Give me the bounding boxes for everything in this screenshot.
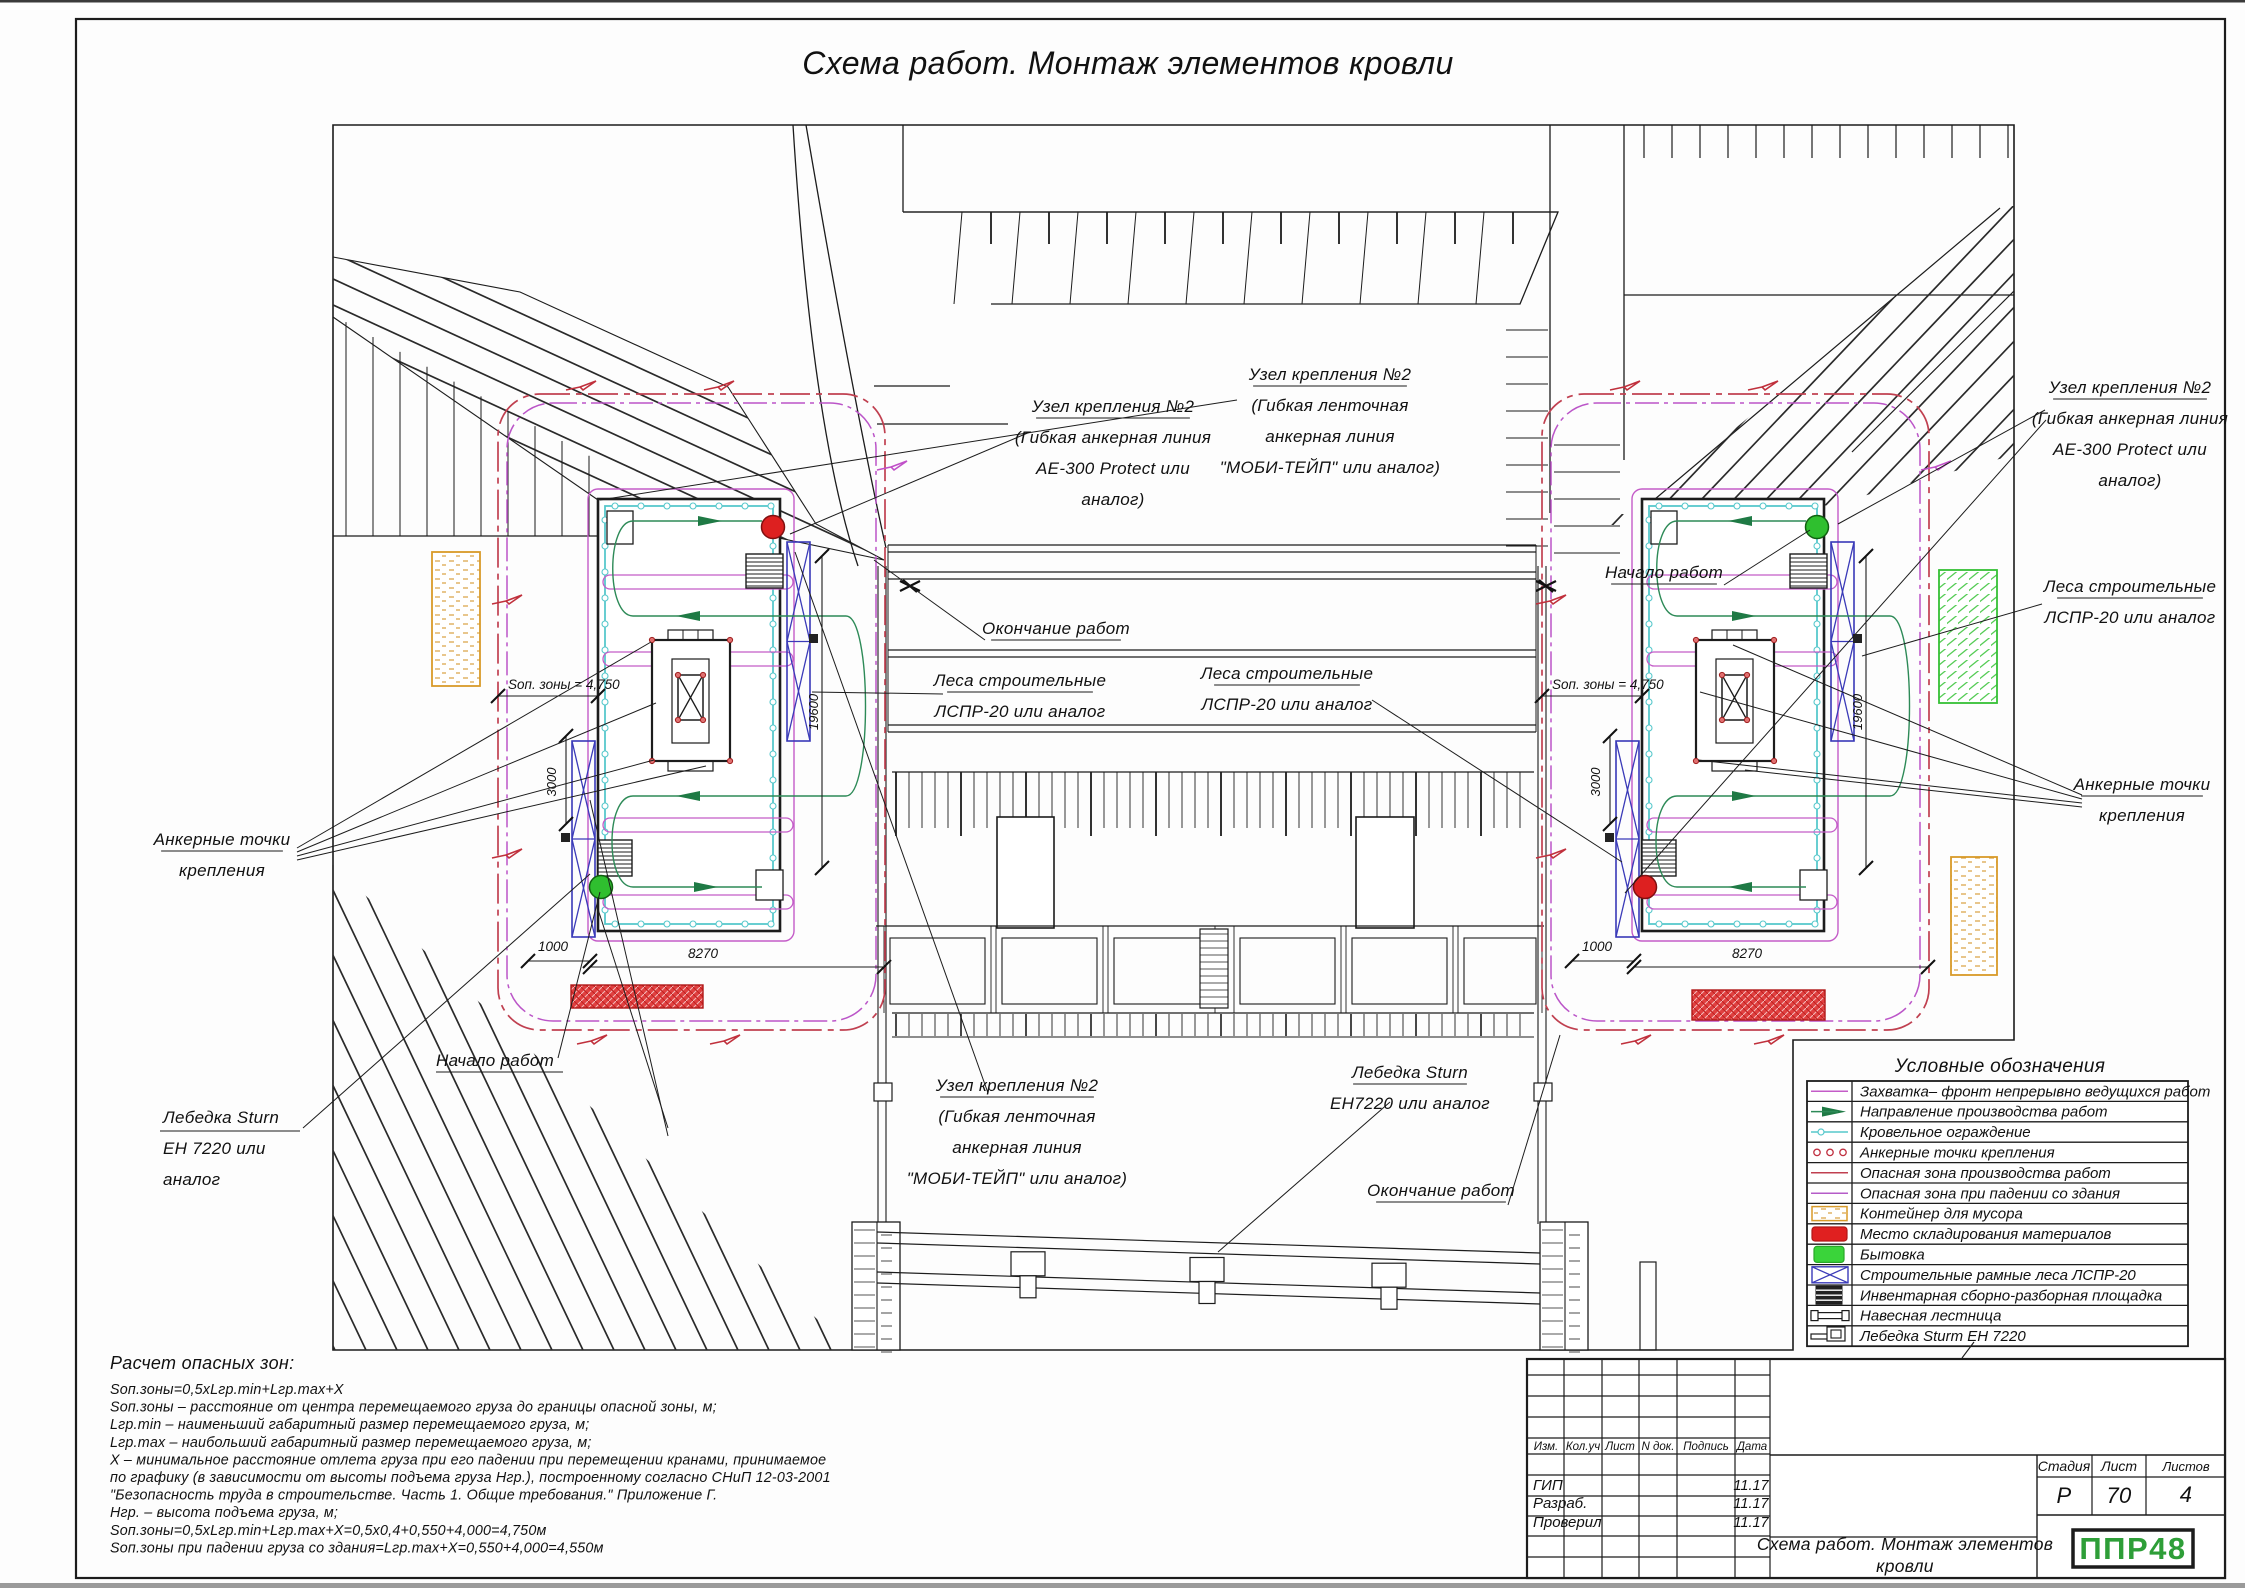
svg-text:8270: 8270 <box>1732 946 1763 961</box>
svg-text:Лебедка Sturn: Лебедка Sturn <box>162 1108 279 1127</box>
svg-text:Изм.: Изм. <box>1534 1441 1559 1453</box>
svg-text:Узел крепления №2: Узел крепления №2 <box>1248 365 1412 384</box>
svg-text:"МОБИ-ТЕЙП" или аналог): "МОБИ-ТЕЙП" или аналог) <box>1220 457 1441 477</box>
svg-text:Узел крепления №2: Узел крепления №2 <box>1031 397 1195 416</box>
svg-text:N док.: N док. <box>1642 1441 1675 1453</box>
svg-text:Навесная лестница: Навесная лестница <box>1860 1308 2001 1325</box>
svg-text:аналог): аналог) <box>1081 490 1144 509</box>
svg-text:Место складирования материалов: Место складирования материалов <box>1860 1226 2111 1243</box>
svg-text:крепления: крепления <box>179 861 265 880</box>
svg-text:Разраб.: Разраб. <box>1533 1495 1587 1512</box>
svg-text:Узел крепления №2: Узел крепления №2 <box>2048 378 2212 397</box>
svg-text:3000: 3000 <box>1588 767 1603 797</box>
svg-text:(Гибкая ленточная: (Гибкая ленточная <box>938 1107 1095 1126</box>
svg-text:Схема работ. Монтаж элементов: Схема работ. Монтаж элементов <box>1757 1534 2053 1554</box>
svg-text:(Гибкая анкерная линия: (Гибкая анкерная линия <box>1015 428 1211 447</box>
svg-text:"МОБИ-ТЕЙП" или аналог): "МОБИ-ТЕЙП" или аналог) <box>907 1168 1128 1188</box>
svg-text:Sоп.зоны при падении груза со: Sоп.зоны при падении груза со здания=Lгр… <box>110 1540 604 1556</box>
svg-text:Анкерные точки крепления: Анкерные точки крепления <box>1859 1145 2055 1162</box>
svg-text:Леса строительные: Леса строительные <box>2043 577 2216 596</box>
svg-text:Листов: Листов <box>2161 1459 2210 1474</box>
svg-text:ГИП: ГИП <box>1533 1477 1563 1494</box>
svg-text:Кровельное ограждение: Кровельное ограждение <box>1860 1124 2031 1141</box>
svg-text:(Гибкая анкерная линия: (Гибкая анкерная линия <box>2032 409 2228 428</box>
svg-text:анкерная линия: анкерная линия <box>952 1138 1082 1157</box>
svg-text:Проверил: Проверил <box>1533 1514 1602 1531</box>
svg-text:(Гибкая ленточная: (Гибкая ленточная <box>1251 396 1408 415</box>
svg-text:по графику (в зависимости от в: по графику (в зависимости от высоты подъ… <box>110 1470 831 1486</box>
svg-text:Лист: Лист <box>1604 1441 1635 1453</box>
svg-text:Кол.уч: Кол.уч <box>1566 1441 1600 1453</box>
svg-text:анкерная линия: анкерная линия <box>1265 427 1395 446</box>
svg-text:кровли: кровли <box>1876 1556 1934 1576</box>
svg-text:Захватка– фронт непрерывно вед: Захватка– фронт непрерывно ведущихся раб… <box>1860 1083 2210 1100</box>
svg-text:аналог): аналог) <box>2098 471 2161 490</box>
svg-text:Строительные рамные леса ЛСПР-: Строительные рамные леса ЛСПР-20 <box>1860 1267 2136 1284</box>
svg-text:Схема работ. Монтаж элементов: Схема работ. Монтаж элементов кровли <box>802 45 1453 81</box>
svg-text:1000: 1000 <box>538 939 569 954</box>
svg-text:Нгр. – высота подъема груза, м: Нгр. – высота подъема груза, м; <box>110 1505 338 1521</box>
svg-text:АЕ-300 Protect или: АЕ-300 Protect или <box>1035 459 1190 478</box>
svg-text:Опасная зона при падении со зд: Опасная зона при падении со здания <box>1860 1185 2120 1202</box>
svg-text:Lгр.max – наибольший габаритны: Lгр.max – наибольший габаритный размер п… <box>110 1435 592 1451</box>
svg-text:ЕН7220 или аналог: ЕН7220 или аналог <box>1330 1094 1490 1113</box>
svg-text:ЛСПР-20 или аналог: ЛСПР-20 или аналог <box>2043 608 2215 627</box>
svg-text:ЛСПР-20 или аналог: ЛСПР-20 или аналог <box>933 702 1105 721</box>
svg-text:11.17: 11.17 <box>1733 1478 1769 1494</box>
svg-text:Контейнер для мусора: Контейнер для мусора <box>1860 1206 2023 1223</box>
svg-text:Леса строительные: Леса строительные <box>933 671 1106 690</box>
svg-text:Sоп.зоны=0,5хLгр.min+Lгр.max+Х: Sоп.зоны=0,5хLгр.min+Lгр.max+Х=0,5х0,4+0… <box>110 1523 546 1539</box>
svg-text:Подпись: Подпись <box>1683 1441 1729 1453</box>
svg-text:Sоп.зоны – расстояние от центр: Sоп.зоны – расстояние от центра перемеща… <box>110 1400 717 1416</box>
svg-text:Лебедка Sturn: Лебедка Sturn <box>1351 1063 1468 1082</box>
svg-text:Направление производства работ: Направление производства работ <box>1860 1104 2108 1121</box>
svg-text:Окончание работ: Окончание работ <box>1367 1181 1515 1200</box>
svg-text:Леса строительные: Леса строительные <box>1200 664 1373 683</box>
svg-text:Окончание работ: Окончание работ <box>982 619 1130 638</box>
svg-text:Начало работ: Начало работ <box>1605 563 1723 582</box>
svg-text:19600: 19600 <box>806 693 821 730</box>
svg-text:ППР48: ППР48 <box>2079 1531 2186 1566</box>
svg-text:11.17: 11.17 <box>1733 1515 1769 1531</box>
svg-text:70: 70 <box>2106 1483 2132 1508</box>
svg-text:Х – минимальное расстояние отл: Х – минимальное расстояние отлета груза … <box>109 1452 826 1468</box>
svg-text:Опасная зона производства рабо: Опасная зона производства работ <box>1860 1165 2111 1182</box>
svg-text:Расчет опасных зон:: Расчет опасных зон: <box>110 1353 294 1373</box>
svg-text:Sоп.зоны=0,5хLгр.min+Lгр.max+Х: Sоп.зоны=0,5хLгр.min+Lгр.max+Х <box>110 1382 344 1398</box>
svg-text:Инвентарная сборно-разборная п: Инвентарная сборно-разборная площадка <box>1860 1287 2162 1304</box>
svg-text:Лист: Лист <box>2100 1458 2137 1474</box>
svg-text:4: 4 <box>2180 1482 2193 1507</box>
svg-text:ЕН 7220 или: ЕН 7220 или <box>163 1139 266 1158</box>
svg-text:АЕ-300 Protect или: АЕ-300 Protect или <box>2052 440 2207 459</box>
svg-text:Лебедка Sturm ЕН 7220: Лебедка Sturm ЕН 7220 <box>1859 1328 2026 1345</box>
svg-text:Дата: Дата <box>1735 1441 1767 1453</box>
svg-text:Р: Р <box>2057 1483 2072 1508</box>
svg-text:крепления: крепления <box>2099 806 2185 825</box>
svg-text:Анкерные точки: Анкерные точки <box>153 830 291 849</box>
svg-text:Условные обозначения: Условные обозначения <box>1894 1056 2105 1077</box>
svg-text:Бытовка: Бытовка <box>1860 1247 1925 1264</box>
svg-text:ЛСПР-20 или аналог: ЛСПР-20 или аналог <box>1200 695 1372 714</box>
svg-text:11.17: 11.17 <box>1733 1496 1769 1512</box>
svg-text:Анкерные точки: Анкерные точки <box>2073 775 2211 794</box>
svg-text:1000: 1000 <box>1582 939 1613 954</box>
svg-text:Стадия: Стадия <box>2038 1458 2091 1474</box>
svg-text:аналог: аналог <box>163 1170 220 1189</box>
svg-text:3000: 3000 <box>544 767 559 797</box>
svg-text:Lгр.min – наименьший габаритны: Lгр.min – наименьший габаритный размер п… <box>110 1417 589 1433</box>
svg-text:Начало работ: Начало работ <box>436 1051 554 1070</box>
svg-text:Узел крепления №2: Узел крепления №2 <box>935 1076 1099 1095</box>
svg-text:8270: 8270 <box>688 946 719 961</box>
svg-text:"Безопасность труда в строител: "Безопасность труда в строительстве. Час… <box>110 1488 717 1504</box>
